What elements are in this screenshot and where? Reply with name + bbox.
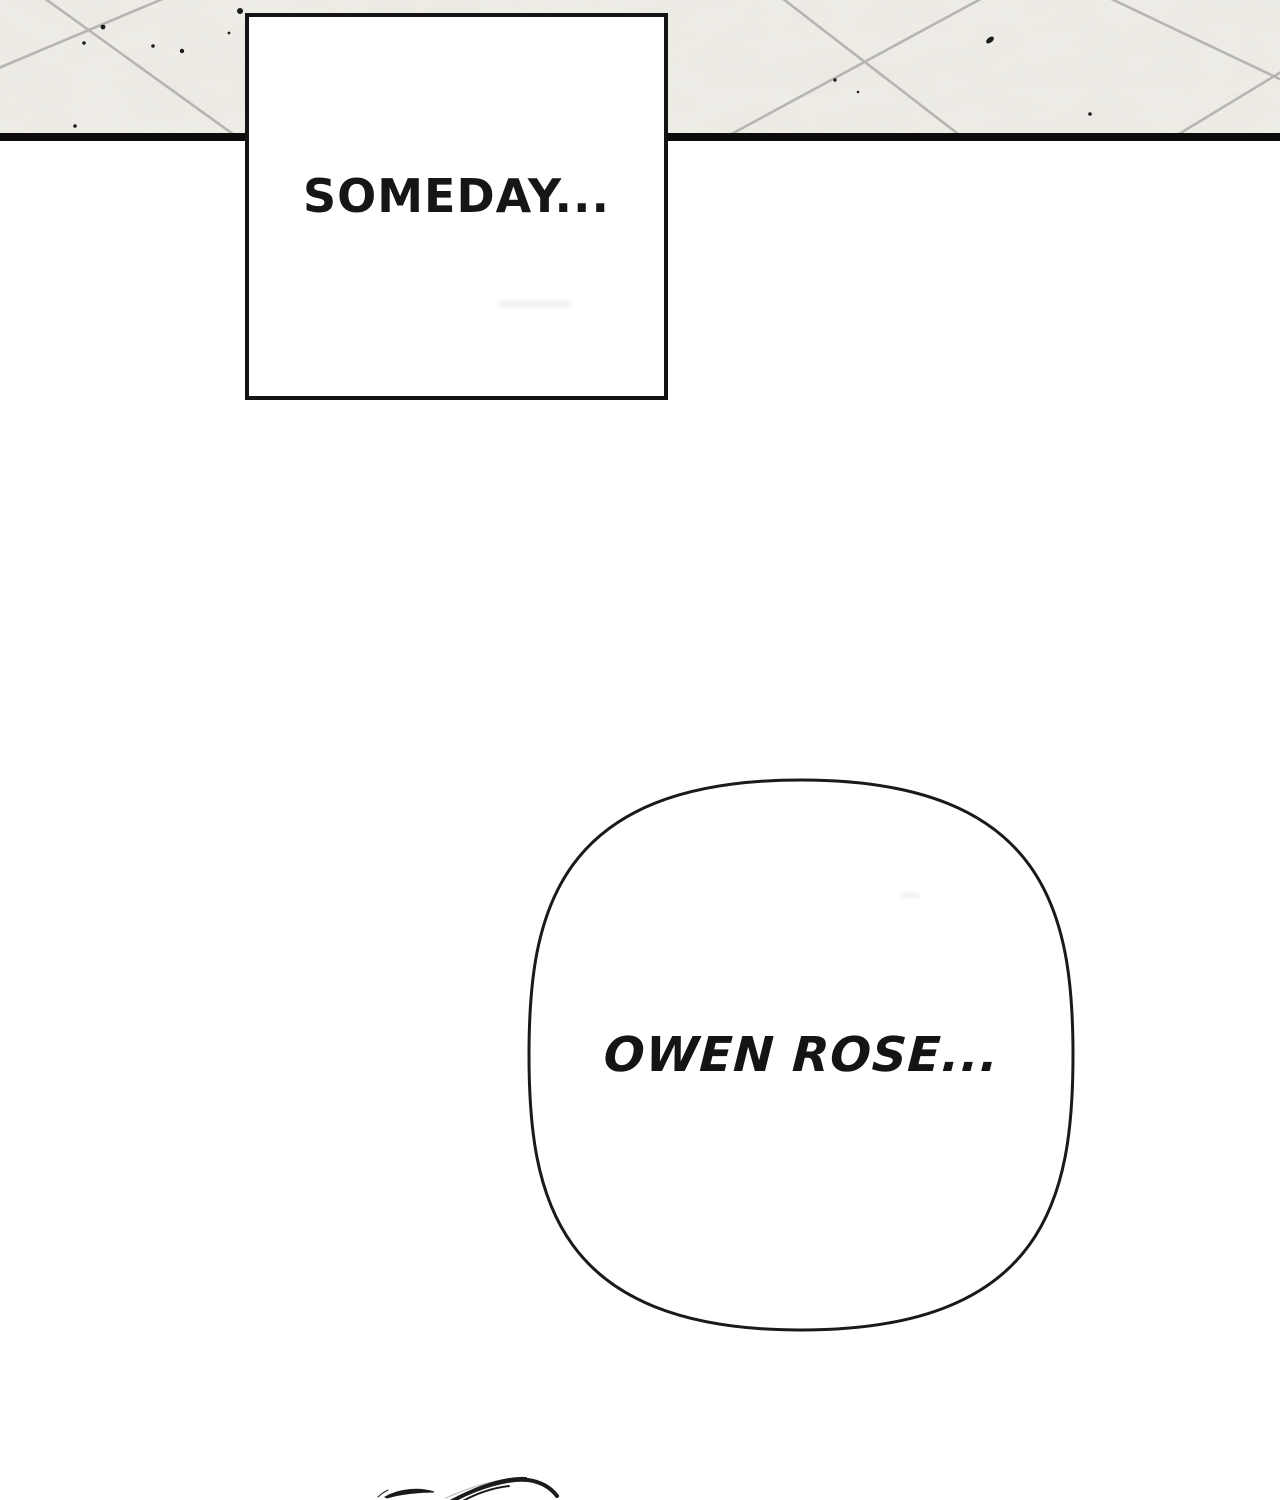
smudge-mark — [497, 301, 571, 307]
speech-bubble-text: OWEN ROSE... — [528, 1030, 1076, 1080]
caption-box: SOMEDAY... — [245, 13, 668, 400]
caption-text: SOMEDAY... — [249, 173, 664, 219]
bubble-smudge-mark — [900, 893, 920, 898]
hair-strokes — [378, 1478, 557, 1500]
comic-page: SOMEDAY... OWEN ROSE... — [0, 0, 1280, 1500]
hair-crescent-stroke — [385, 1489, 434, 1498]
